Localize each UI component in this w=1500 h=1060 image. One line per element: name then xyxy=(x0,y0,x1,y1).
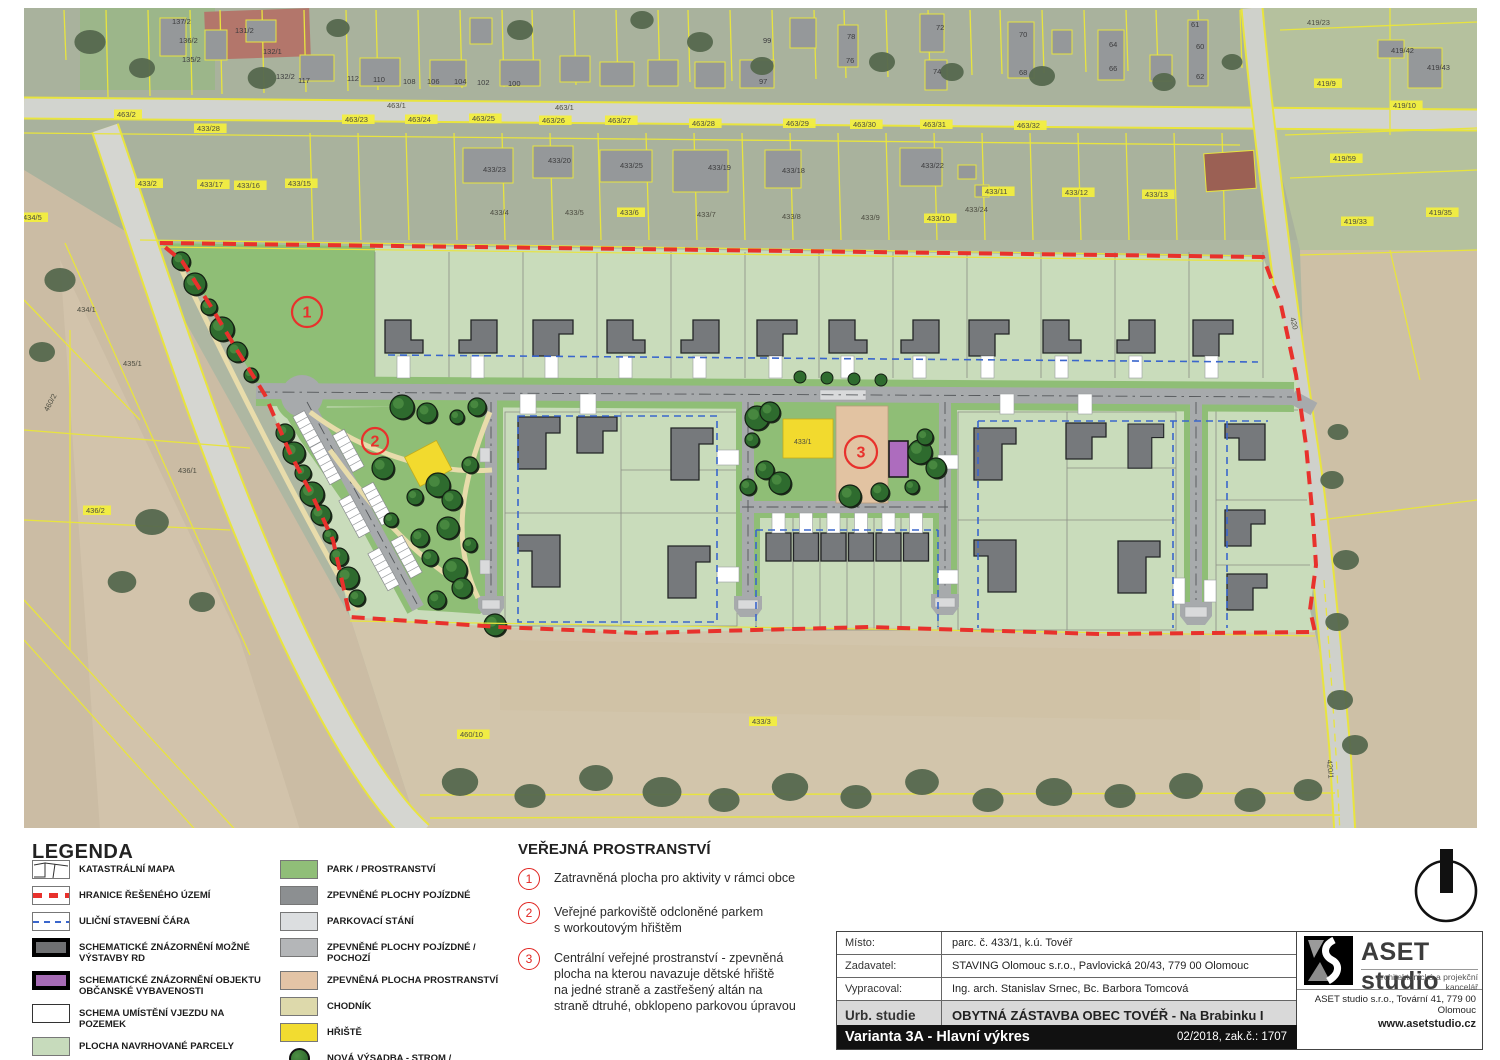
map-label: 433/20 xyxy=(548,156,571,165)
title-block-row-label: Místo: xyxy=(837,932,942,954)
map-label: 433/19 xyxy=(708,163,731,172)
map-label: 117 xyxy=(298,76,310,85)
svg-text:433/20: 433/20 xyxy=(548,156,571,165)
map-label: 60 xyxy=(1196,42,1204,51)
map-label: 463/1 xyxy=(555,103,574,112)
legend-item: ULIČNÍ STAVEBNÍ ČÁRA xyxy=(32,912,272,931)
svg-text:62: 62 xyxy=(1196,72,1204,81)
svg-text:132/1: 132/1 xyxy=(263,47,282,56)
legend-item-label: NOVÁ VÝSADBA - STROM / STROMOŘADÍ xyxy=(327,1049,510,1060)
svg-text:74: 74 xyxy=(933,67,941,76)
legend-item-label: ZPEVNĚNÉ PLOCHY POJÍZDNÉ / POCHOZÍ xyxy=(327,938,510,964)
svg-text:433/15: 433/15 xyxy=(288,179,311,188)
legend-swatch-red xyxy=(32,886,70,905)
legend-item-label: PARKOVACÍ STÁNÍ xyxy=(327,912,414,927)
firm-logo-area: ASET studio architektonická a projekční … xyxy=(1297,932,1482,990)
svg-text:463/27: 463/27 xyxy=(608,116,631,125)
svg-text:100: 100 xyxy=(508,79,521,88)
svg-text:106: 106 xyxy=(427,77,440,86)
map-label: 420/1 xyxy=(1325,759,1336,778)
svg-text:433/16: 433/16 xyxy=(237,181,260,190)
map-label: 100 xyxy=(508,79,521,88)
svg-text:420/1: 420/1 xyxy=(1325,759,1336,778)
title-block-row: Vypracoval:Ing. arch. Stanislav Srnec, B… xyxy=(837,978,1296,1001)
map-label: 433/24 xyxy=(965,205,988,214)
map-label: 433/6 xyxy=(617,208,645,218)
note-text: Centrální veřejné prostranství - zpevněn… xyxy=(554,948,796,1014)
map-label: 108 xyxy=(403,77,416,86)
map-label: 463/29 xyxy=(783,119,816,129)
map-label: 419/59 xyxy=(1330,154,1363,164)
svg-text:64: 64 xyxy=(1109,40,1117,49)
svg-text:463/25: 463/25 xyxy=(472,114,495,123)
map-label: 110 xyxy=(373,75,385,84)
legend-item-label: PLOCHA NAVRHOVANÉ PARCELY xyxy=(79,1037,234,1052)
svg-text:463/23: 463/23 xyxy=(345,115,368,124)
svg-text:463/1: 463/1 xyxy=(555,103,574,112)
svg-text:419/9: 419/9 xyxy=(1317,79,1336,88)
map-label: 433/11 xyxy=(982,187,1015,197)
svg-text:137/2: 137/2 xyxy=(172,17,191,26)
note-item: 2Veřejné parkoviště odcloněné parkem s w… xyxy=(518,902,848,936)
north-arrow-icon xyxy=(1404,843,1494,928)
map-label: 419/9 xyxy=(1314,79,1342,89)
map-label: 104 xyxy=(454,77,467,86)
map-label: 99 xyxy=(763,36,771,45)
legend-item: NOVÁ VÝSADBA - STROM / STROMOŘADÍ xyxy=(280,1049,510,1060)
map-label: 68 xyxy=(1019,68,1027,77)
svg-text:433/18: 433/18 xyxy=(782,166,805,175)
svg-text:433/9: 433/9 xyxy=(861,213,880,222)
svg-text:68: 68 xyxy=(1019,68,1027,77)
legend-item: PLOCHA NAVRHOVANÉ PARCELY xyxy=(32,1037,272,1056)
map-label: 433/9 xyxy=(861,213,880,222)
svg-text:132/2: 132/2 xyxy=(276,72,295,81)
legend-swatch-blue xyxy=(32,912,70,931)
svg-text:433/17: 433/17 xyxy=(200,180,223,189)
svg-text:433/2: 433/2 xyxy=(138,179,157,188)
legend-item: SCHEMA UMÍSTĚNÍ VJEZDU NA POZEMEK xyxy=(32,1004,272,1030)
map-label: 433/1 xyxy=(794,439,812,446)
map-label: 132/2 xyxy=(276,72,295,81)
svg-text:97: 97 xyxy=(759,77,767,86)
svg-text:433/13: 433/13 xyxy=(1145,190,1168,199)
note-item: 3Centrální veřejné prostranství - zpevně… xyxy=(518,948,848,1014)
svg-text:135/2: 135/2 xyxy=(182,55,201,64)
legend-right-column: PARK / PROSTRANSTVÍZPEVNĚNÉ PLOCHY POJÍZ… xyxy=(280,860,510,1060)
note-item: 1Zatravněná plocha pro aktivity v rámci … xyxy=(518,868,848,890)
svg-text:419/43: 419/43 xyxy=(1427,63,1450,72)
site-plan-map: 137/2136/2135/2131/2132/1132/21171121101… xyxy=(0,0,1500,835)
map-label: 78 xyxy=(847,32,855,41)
note-number-badge: 1 xyxy=(518,868,540,890)
svg-text:434/1: 434/1 xyxy=(77,305,96,314)
firm-address-area: ASET studio s.r.o., Tovární 41, 779 00 O… xyxy=(1297,989,1482,1032)
svg-text:463/31: 463/31 xyxy=(923,120,946,129)
svg-text:112: 112 xyxy=(347,74,359,83)
map-label: 434/1 xyxy=(77,305,96,314)
legend-item-label: SCHEMA UMÍSTĚNÍ VJEZDU NA POZEMEK xyxy=(79,1004,272,1030)
map-label: 463/28 xyxy=(689,119,722,129)
svg-text:419/35: 419/35 xyxy=(1429,208,1452,217)
legend-item-label: HŘIŠTĚ xyxy=(327,1023,362,1038)
svg-text:433/12: 433/12 xyxy=(1065,188,1088,197)
map-label: 72 xyxy=(936,23,944,32)
firm-panel: ASET studio architektonická a projekční … xyxy=(1297,932,1482,1049)
svg-text:433/6: 433/6 xyxy=(620,208,639,217)
svg-text:433/23: 433/23 xyxy=(483,165,506,174)
map-label: 463/25 xyxy=(469,114,502,124)
site-plan-svg: 137/2136/2135/2131/2132/1132/21171121101… xyxy=(0,0,1500,835)
svg-text:433/22: 433/22 xyxy=(921,161,944,170)
map-label: 435/1 xyxy=(123,359,142,368)
legend-item: SCHEMATICKÉ ZNÁZORNĚNÍ MOŽNÉ VÝSTAVBY RD xyxy=(32,938,272,964)
legend-swatch-color xyxy=(280,938,318,957)
legend-item-label: SCHEMATICKÉ ZNÁZORNĚNÍ MOŽNÉ VÝSTAVBY RD xyxy=(79,938,272,964)
svg-text:433/28: 433/28 xyxy=(197,124,220,133)
legend-item-label: PARK / PROSTRANSTVÍ xyxy=(327,860,436,875)
svg-text:131/2: 131/2 xyxy=(235,26,254,35)
legend-item-label: HRANICE ŘEŠENÉHO ÚZEMÍ xyxy=(79,886,210,901)
map-label: 433/10 xyxy=(924,214,957,224)
map-label: 433/25 xyxy=(620,161,643,170)
map-label: 433/5 xyxy=(565,208,584,217)
legend-item-label: ULIČNÍ STAVEBNÍ ČÁRA xyxy=(79,912,190,927)
map-label: 433/17 xyxy=(197,180,230,190)
svg-text:419/23: 419/23 xyxy=(1307,18,1330,27)
legend-swatch-house xyxy=(32,938,70,957)
map-label: 62 xyxy=(1196,72,1204,81)
svg-text:463/32: 463/32 xyxy=(1017,121,1040,130)
title-block-row-value: parc. č. 433/1, k.ú. Tovéř xyxy=(942,937,1296,949)
legend-swatch-tree xyxy=(280,1049,318,1060)
note-number-badge: 2 xyxy=(518,902,540,924)
sheet-footer: LEGENDA KATASTRÁLNÍ MAPAHRANICE ŘEŠENÉHO… xyxy=(0,835,1500,1060)
study-type-value: OBYTNÁ ZÁSTAVBA OBEC TOVÉŘ - Na Brabinku… xyxy=(942,1008,1296,1023)
map-label: 61 xyxy=(1191,20,1199,29)
map-label: 433/15 xyxy=(285,179,318,189)
map-label: 463/31 xyxy=(920,120,953,130)
map-label: 419/23 xyxy=(1307,18,1330,27)
svg-text:433/11: 433/11 xyxy=(985,187,1007,196)
map-label: 434/5 xyxy=(20,213,48,223)
legend-item: HŘIŠTĚ xyxy=(280,1023,510,1042)
map-label: 419/33 xyxy=(1341,217,1374,227)
map-label: 106 xyxy=(427,77,440,86)
title-block-table: Místo:parc. č. 433/1, k.ú. TovéřZadavate… xyxy=(837,932,1297,1049)
legend-swatch-color xyxy=(280,997,318,1016)
svg-text:463/28: 463/28 xyxy=(692,119,715,128)
svg-text:136/2: 136/2 xyxy=(179,36,198,45)
note-text: Zatravněná plocha pro aktivity v rámci o… xyxy=(554,868,795,890)
svg-text:433/4: 433/4 xyxy=(490,208,509,217)
svg-text:110: 110 xyxy=(373,75,385,84)
legend-swatch-color xyxy=(280,860,318,879)
svg-text:99: 99 xyxy=(763,36,771,45)
svg-text:460/10: 460/10 xyxy=(460,730,483,739)
svg-text:419/59: 419/59 xyxy=(1333,154,1356,163)
svg-text:433/5: 433/5 xyxy=(565,208,584,217)
map-label: 436/2 xyxy=(83,506,111,516)
notes-title: VEŘEJNÁ PROSTRANSTVÍ xyxy=(518,841,848,858)
legend-item: ZPEVNĚNÁ PLOCHA PROSTRANSTVÍ xyxy=(280,971,510,990)
map-label: 433/16 xyxy=(234,181,267,191)
legend-item: KATASTRÁLNÍ MAPA xyxy=(32,860,272,879)
map-label: 433/22 xyxy=(921,161,944,170)
svg-text:61: 61 xyxy=(1191,20,1199,29)
drawing-sheet: 137/2136/2135/2131/2132/1132/21171121101… xyxy=(0,0,1500,1060)
svg-text:463/24: 463/24 xyxy=(408,115,431,124)
map-label: 433/7 xyxy=(697,210,716,219)
map-label: 463/23 xyxy=(342,115,375,125)
map-label: 112 xyxy=(347,74,359,83)
map-label: 131/2 xyxy=(235,26,254,35)
svg-text:463/2: 463/2 xyxy=(117,110,136,119)
map-label: 463/30 xyxy=(850,120,883,130)
svg-text:433/24: 433/24 xyxy=(965,205,988,214)
svg-text:463/29: 463/29 xyxy=(786,119,809,128)
svg-text:78: 78 xyxy=(847,32,855,41)
svg-text:436/1: 436/1 xyxy=(178,466,197,475)
svg-text:435/1: 435/1 xyxy=(123,359,142,368)
map-label: 132/1 xyxy=(263,47,282,56)
map-label: 102 xyxy=(477,78,490,87)
title-block-row: Zadavatel:STAVING Olomouc s.r.o., Pavlov… xyxy=(837,955,1296,978)
firm-address: ASET studio s.r.o., Tovární 41, 779 00 O… xyxy=(1297,994,1476,1016)
title-block-row-label: Zadavatel: xyxy=(837,955,942,977)
legend-item-label: ZPEVNĚNÉ PLOCHY POJÍZDNÉ xyxy=(327,886,470,901)
map-label: 419/42 xyxy=(1391,46,1414,55)
svg-text:433/25: 433/25 xyxy=(620,161,643,170)
legend-item: PARKOVACÍ STÁNÍ xyxy=(280,912,510,931)
legend-swatch-color xyxy=(280,971,318,990)
map-label: 76 xyxy=(846,56,854,65)
map-label: 419/10 xyxy=(1390,101,1423,111)
svg-text:436/2: 436/2 xyxy=(86,506,105,515)
legend-swatch-color xyxy=(32,1037,70,1056)
svg-text:60: 60 xyxy=(1196,42,1204,51)
svg-text:66: 66 xyxy=(1109,64,1117,73)
map-label: 419/43 xyxy=(1427,63,1450,72)
map-label: 433/28 xyxy=(194,124,227,134)
svg-text:419/10: 419/10 xyxy=(1393,101,1416,110)
public-spaces-notes: VEŘEJNÁ PROSTRANSTVÍ 1Zatravněná plocha … xyxy=(518,835,848,1026)
variant-bar: Varianta 3A - Hlavní výkres 02/2018, zak… xyxy=(837,1025,1297,1049)
map-label: 433/23 xyxy=(483,165,506,174)
date-job-number: 02/2018, zak.č.: 1707 xyxy=(1177,1031,1297,1043)
svg-text:433/8: 433/8 xyxy=(782,212,801,221)
title-block-row-value: Ing. arch. Stanislav Srnec, Bc. Barbora … xyxy=(942,983,1296,995)
svg-text:433/7: 433/7 xyxy=(697,210,716,219)
map-label: 74 xyxy=(933,67,941,76)
svg-text:104: 104 xyxy=(454,77,467,86)
svg-text:463/1: 463/1 xyxy=(387,101,406,110)
legend-item: PARK / PROSTRANSTVÍ xyxy=(280,860,510,879)
legend-swatch-civic xyxy=(32,971,70,990)
svg-text:70: 70 xyxy=(1019,30,1027,39)
legend-swatch-color xyxy=(280,912,318,931)
title-block-row: Místo:parc. č. 433/1, k.ú. Tovéř xyxy=(837,932,1296,955)
legend-swatch-cad xyxy=(32,860,70,879)
legend-item: CHODNÍK xyxy=(280,997,510,1016)
civic-building xyxy=(889,441,908,477)
legend-item-label: KATASTRÁLNÍ MAPA xyxy=(79,860,175,875)
svg-text:117: 117 xyxy=(298,76,310,85)
svg-text:419/42: 419/42 xyxy=(1391,46,1414,55)
map-label: 97 xyxy=(759,77,767,86)
map-label: 463/27 xyxy=(605,116,638,126)
title-block-row-label: Vypracoval: xyxy=(837,978,942,1000)
svg-text:3: 3 xyxy=(857,445,866,462)
map-label: 64 xyxy=(1109,40,1117,49)
svg-text:463/30: 463/30 xyxy=(853,120,876,129)
svg-text:433/1: 433/1 xyxy=(794,439,812,446)
map-label: 436/1 xyxy=(178,466,197,475)
firm-website: www.asetstudio.cz xyxy=(1297,1018,1476,1030)
svg-text:419/33: 419/33 xyxy=(1344,217,1367,226)
svg-text:1: 1 xyxy=(303,305,312,322)
note-number-badge: 3 xyxy=(518,948,540,970)
legend-item-label: SCHEMATICKÉ ZNÁZORNĚNÍ OBJEKTU OBČANSKÉ … xyxy=(79,971,272,997)
map-label: 463/24 xyxy=(405,115,438,125)
legend-item: HRANICE ŘEŠENÉHO ÚZEMÍ xyxy=(32,886,272,905)
title-block-row-value: STAVING Olomouc s.r.o., Pavlovická 20/43… xyxy=(942,960,1296,972)
map-label: 463/1 xyxy=(387,101,406,110)
legend-swatch-color xyxy=(280,886,318,905)
legend-item: ZPEVNĚNÉ PLOCHY POJÍZDNÉ / POCHOZÍ xyxy=(280,938,510,964)
svg-text:433/19: 433/19 xyxy=(708,163,731,172)
variant-title: Varianta 3A - Hlavní výkres xyxy=(837,1029,1177,1045)
svg-text:434/5: 434/5 xyxy=(23,213,42,222)
legend-item: SCHEMATICKÉ ZNÁZORNĚNÍ OBJEKTU OBČANSKÉ … xyxy=(32,971,272,997)
svg-text:72: 72 xyxy=(936,23,944,32)
svg-text:433/3: 433/3 xyxy=(752,717,771,726)
aset-logo-icon xyxy=(1304,936,1353,985)
map-label: 419/35 xyxy=(1426,208,1459,218)
map-label: 463/2 xyxy=(114,110,142,120)
legend-item-label: CHODNÍK xyxy=(327,997,371,1012)
map-label: 433/12 xyxy=(1062,188,1095,198)
note-text: Veřejné parkoviště odcloněné parkem s wo… xyxy=(554,902,763,936)
map-label: 460/10 xyxy=(457,730,490,740)
map-label: 433/2 xyxy=(135,179,163,189)
svg-text:102: 102 xyxy=(477,78,490,87)
svg-text:433/10: 433/10 xyxy=(927,214,950,223)
map-label: 66 xyxy=(1109,64,1117,73)
legend-swatch-entry xyxy=(32,1004,70,1023)
map-label: 463/32 xyxy=(1014,121,1047,131)
svg-text:76: 76 xyxy=(846,56,854,65)
map-label: 463/26 xyxy=(539,116,572,126)
svg-text:2: 2 xyxy=(371,434,380,451)
map-label: 433/18 xyxy=(782,166,805,175)
svg-text:108: 108 xyxy=(403,77,416,86)
map-label: 70 xyxy=(1019,30,1027,39)
map-label: 433/8 xyxy=(782,212,801,221)
map-label: 433/3 xyxy=(749,717,777,727)
legend-swatch-color xyxy=(280,1023,318,1042)
legend-item: ZPEVNĚNÉ PLOCHY POJÍZDNÉ xyxy=(280,886,510,905)
map-label: 137/2 xyxy=(172,17,191,26)
map-label: 433/4 xyxy=(490,208,509,217)
svg-text:463/26: 463/26 xyxy=(542,116,565,125)
legend-left-column: KATASTRÁLNÍ MAPAHRANICE ŘEŠENÉHO ÚZEMÍUL… xyxy=(32,860,272,1060)
map-label: 136/2 xyxy=(179,36,198,45)
legend-item-label: ZPEVNĚNÁ PLOCHA PROSTRANSTVÍ xyxy=(327,971,498,986)
map-label: 135/2 xyxy=(182,55,201,64)
title-block: Místo:parc. č. 433/1, k.ú. TovéřZadavate… xyxy=(836,931,1483,1050)
map-label: 433/13 xyxy=(1142,190,1175,200)
